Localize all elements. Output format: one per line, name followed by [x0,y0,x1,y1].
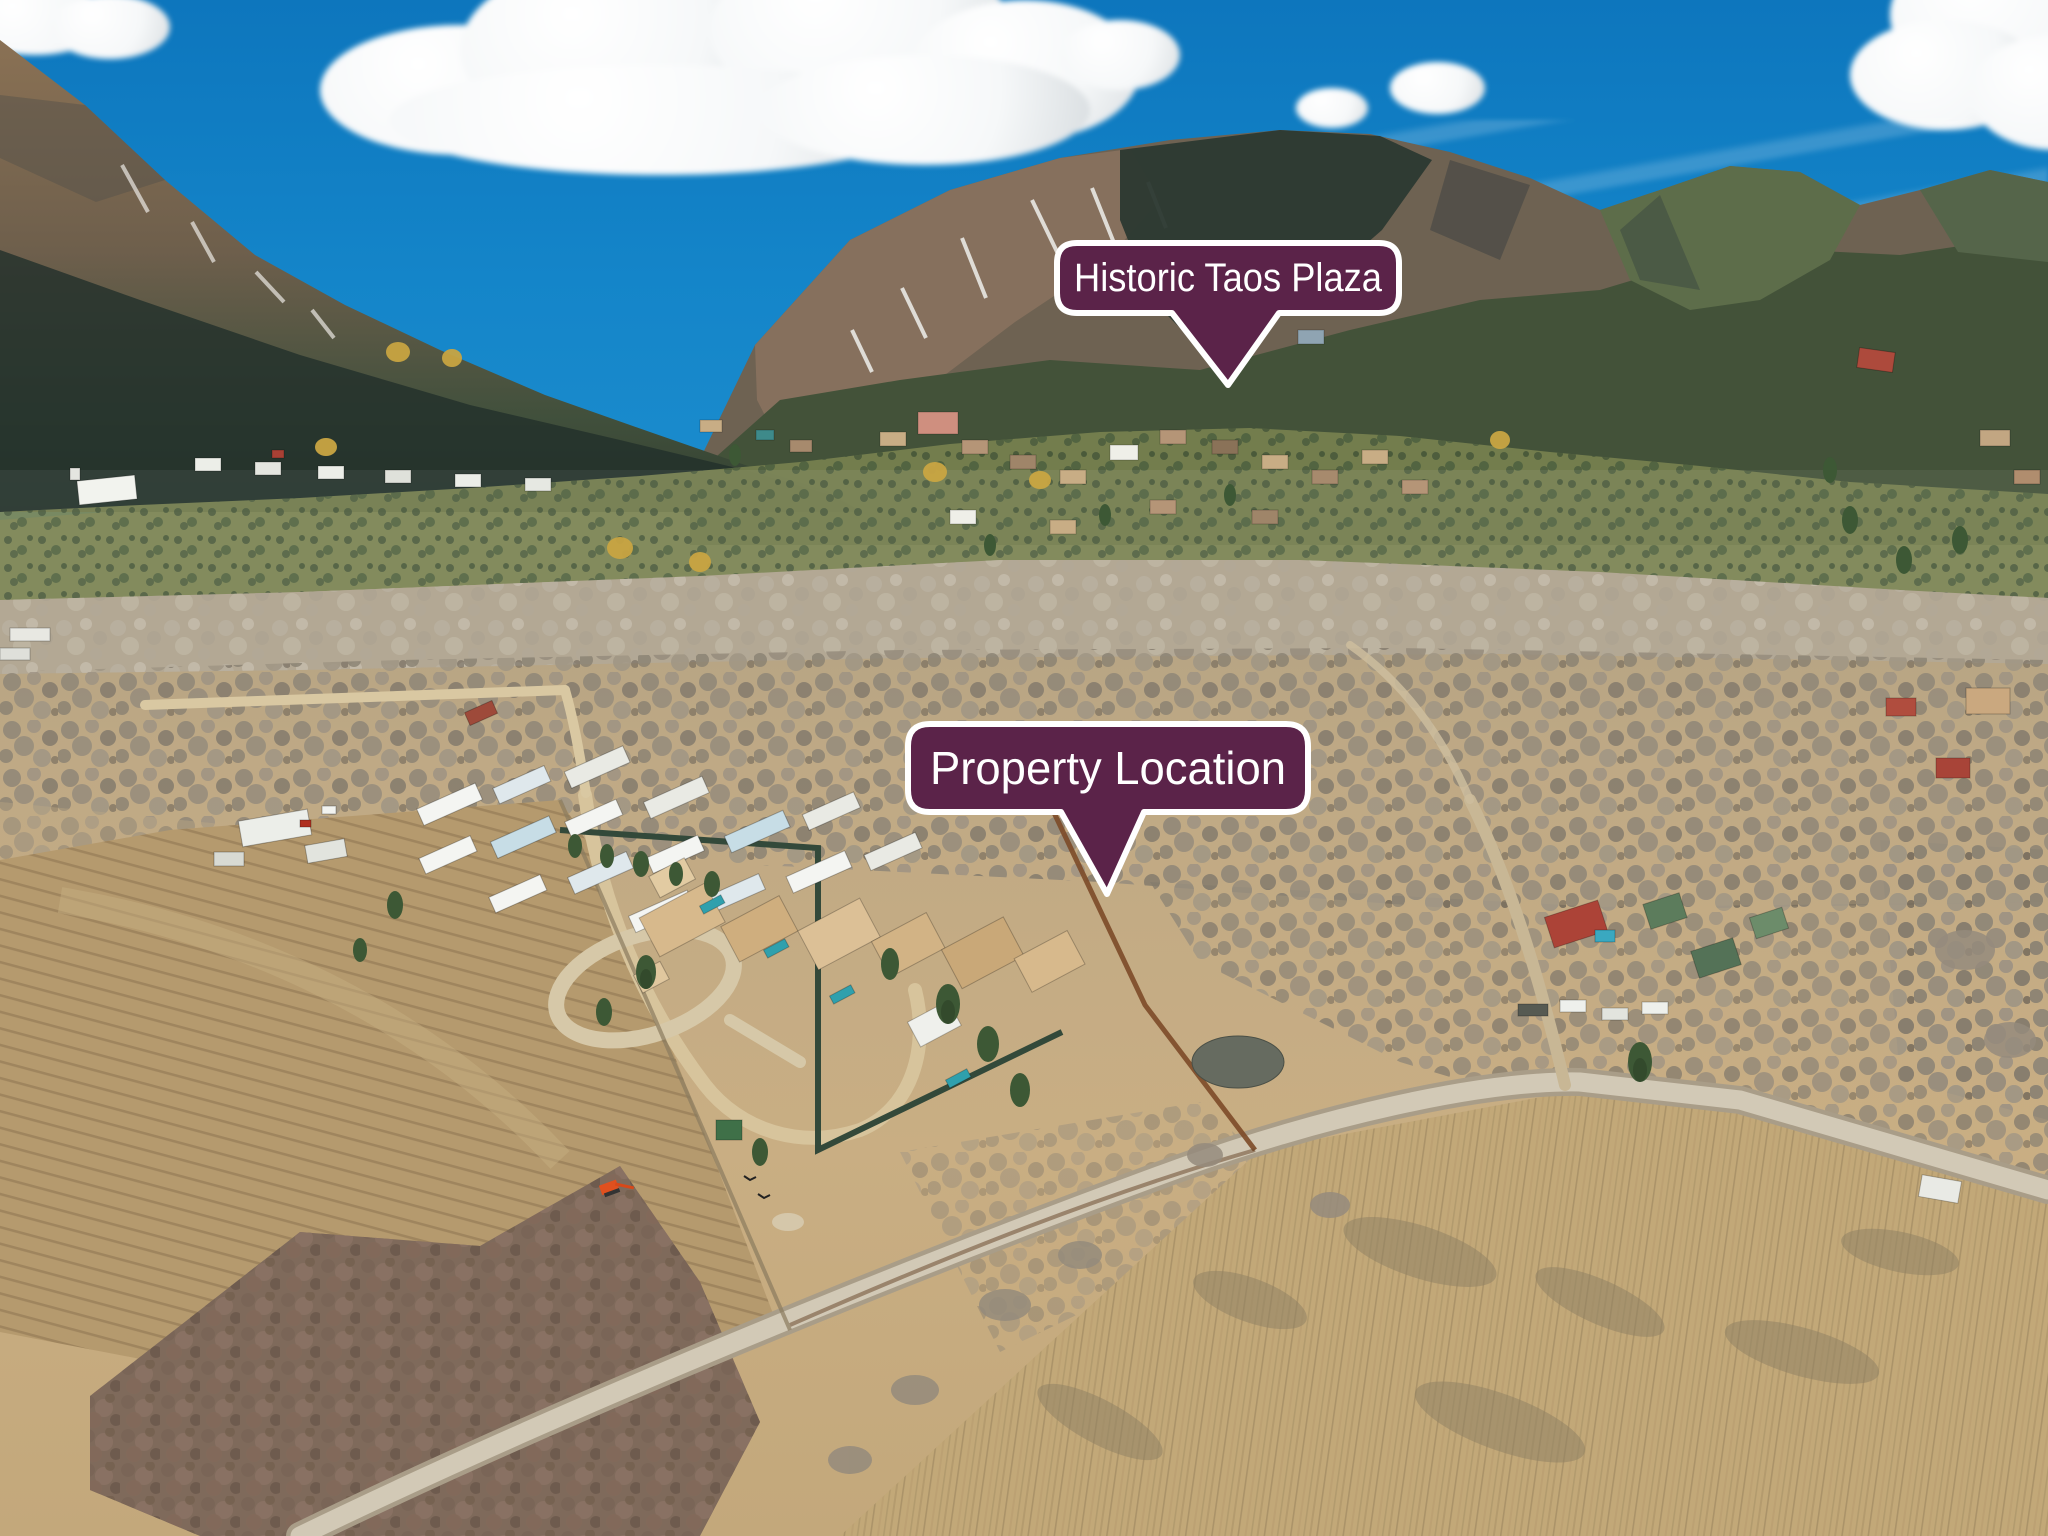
callout-historic-taos-plaza: Historic Taos Plaza [1047,233,1409,395]
callout-property-location: Property Location [898,714,1318,904]
callout-label: Property Location [930,742,1286,794]
pale-ground-spot [772,1213,804,1231]
callout-label: Historic Taos Plaza [1074,256,1383,300]
aerial-photo: Historic Taos Plaza Property Location [0,0,2048,1536]
